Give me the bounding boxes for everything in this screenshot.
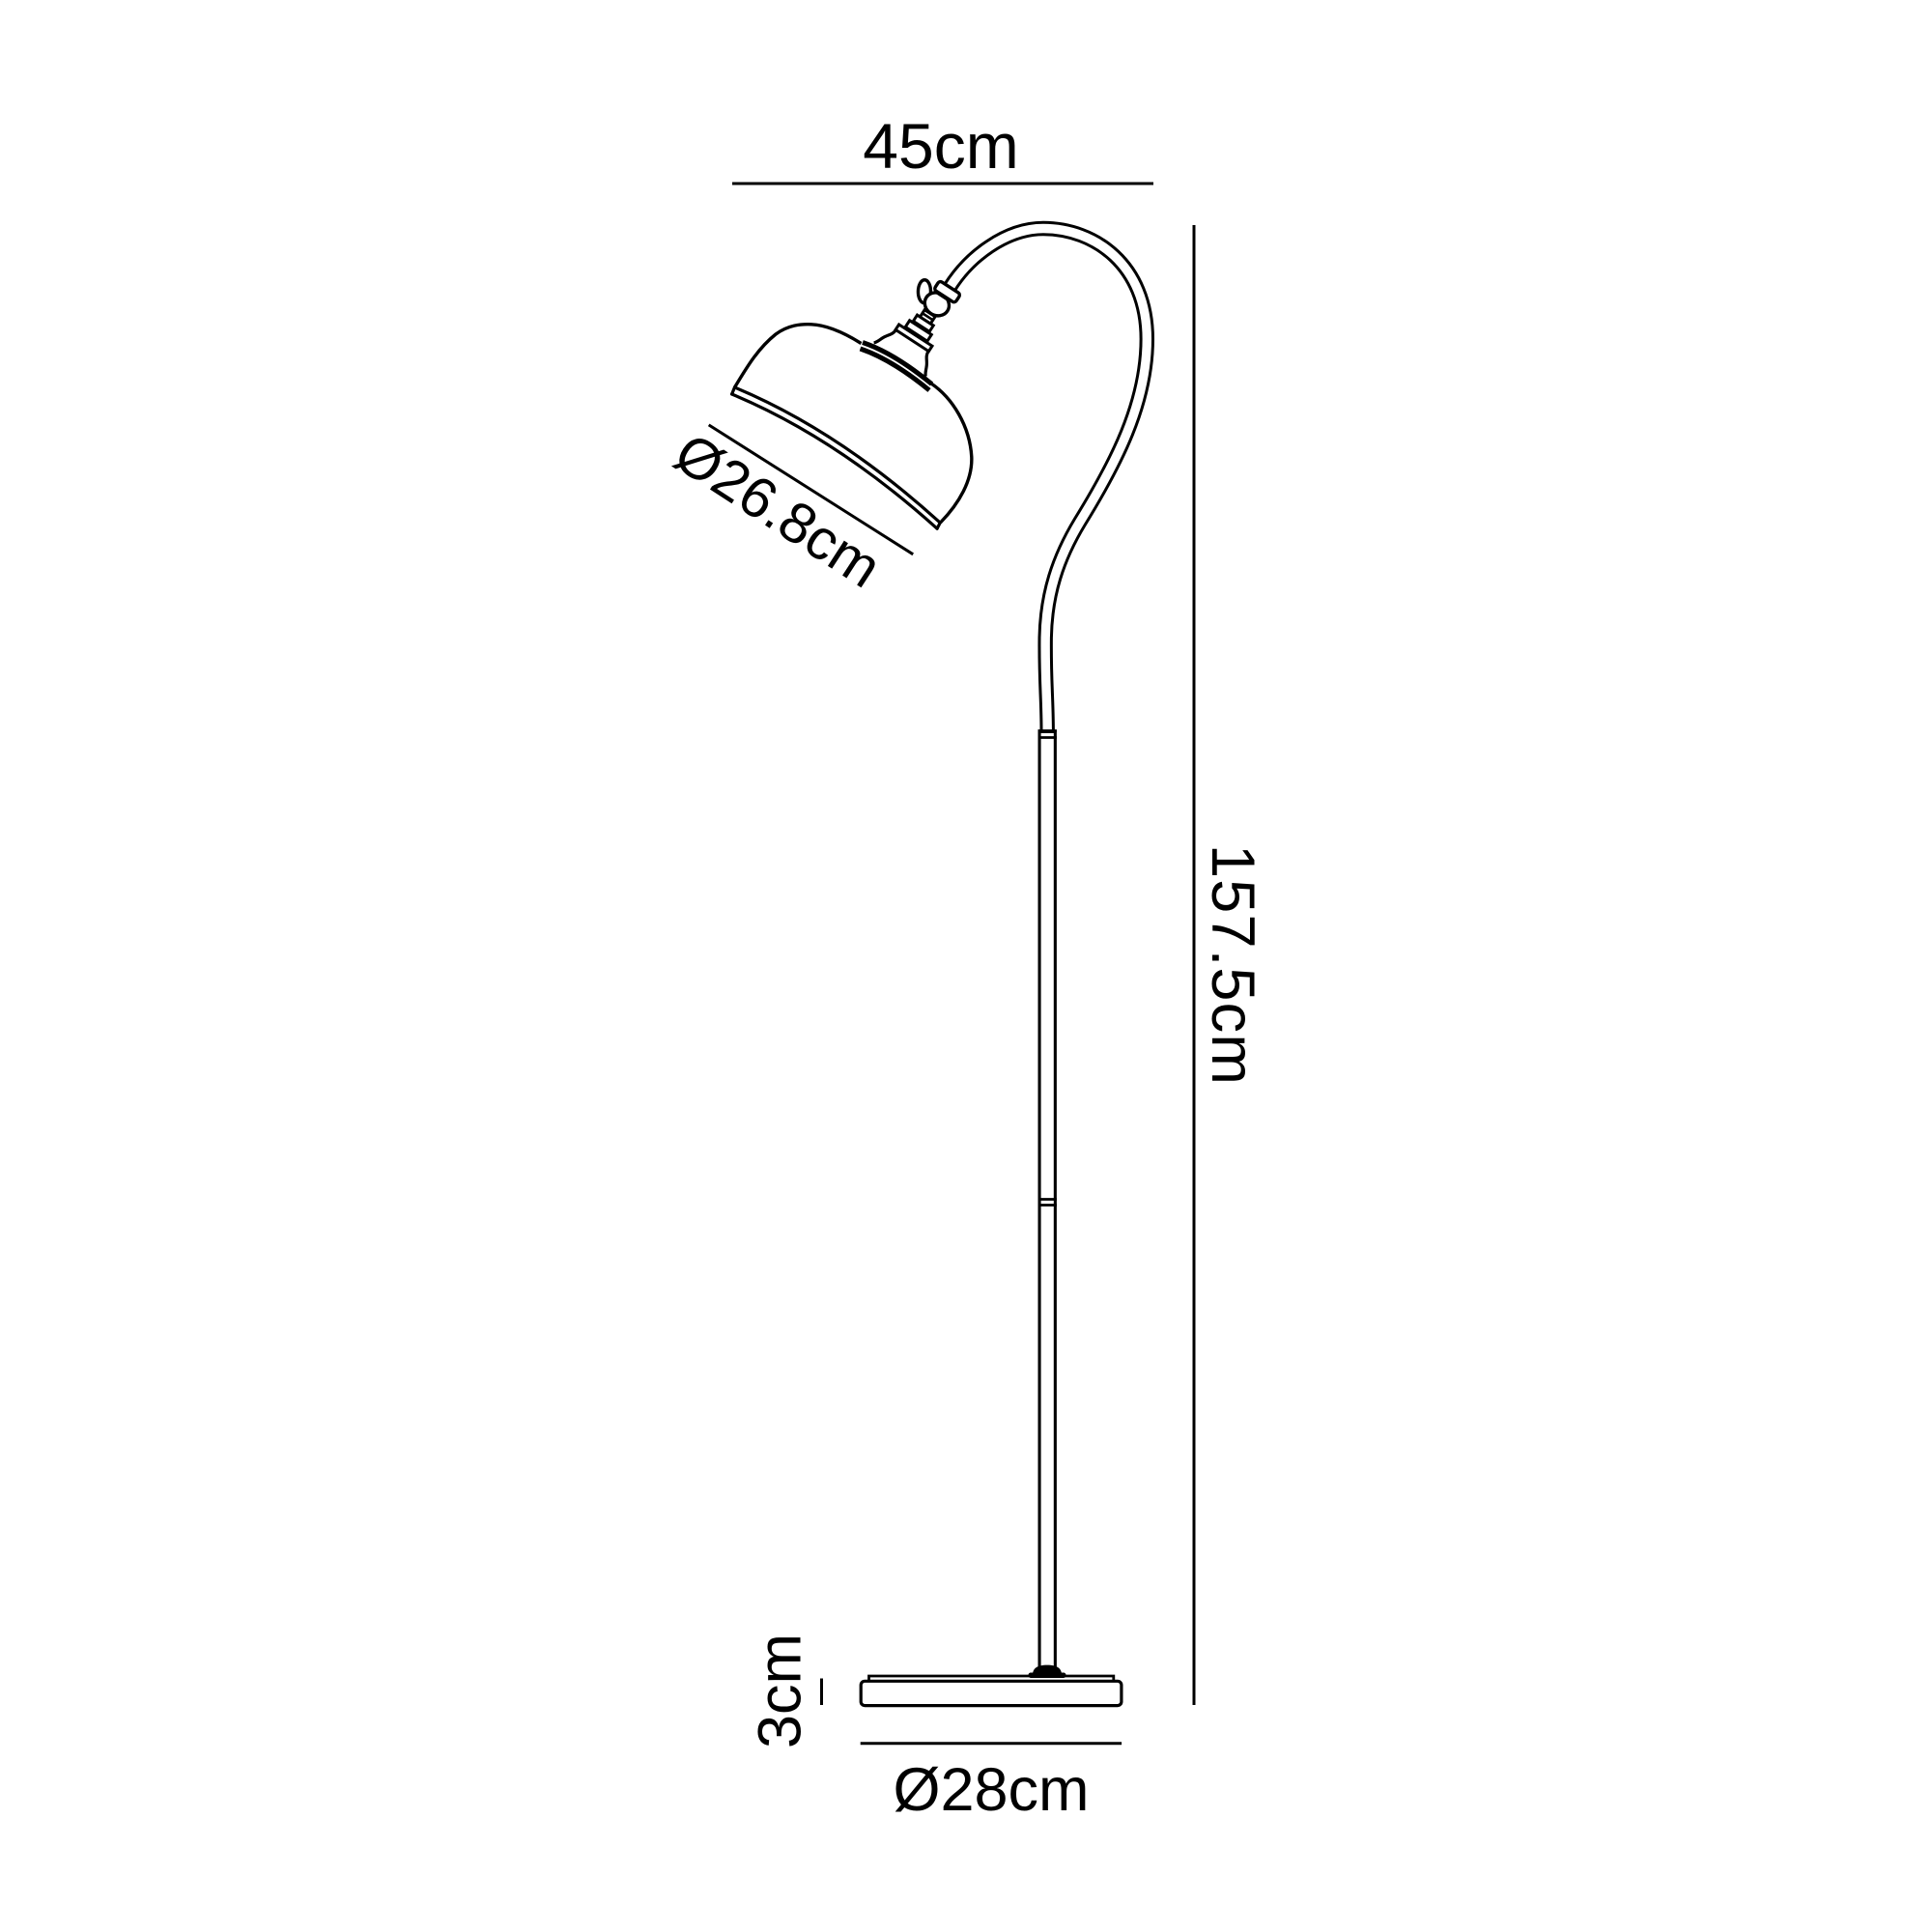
svg-text:45cm: 45cm (863, 110, 1018, 182)
svg-text:3cm: 3cm (747, 1634, 814, 1748)
svg-text:Ø28cm: Ø28cm (893, 1756, 1089, 1824)
svg-text:157.5cm: 157.5cm (1199, 844, 1266, 1086)
